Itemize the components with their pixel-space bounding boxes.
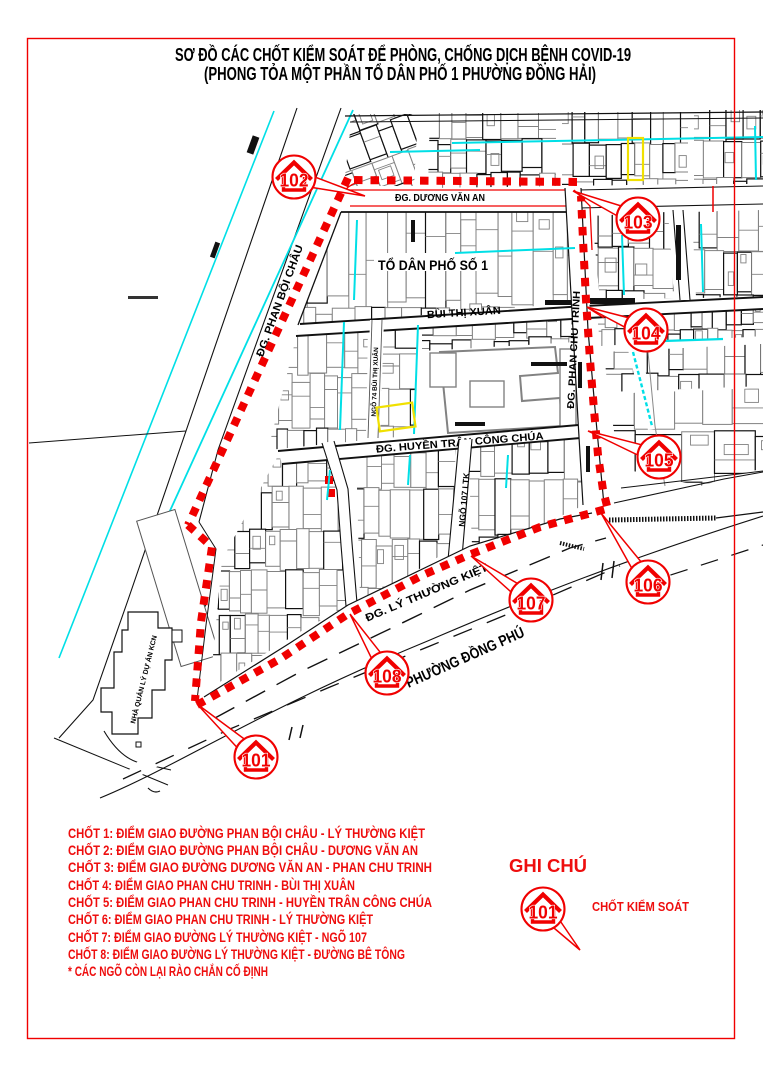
- svg-text:107: 107: [517, 593, 546, 614]
- svg-text:CHỐT 7: ĐIỂM GIAO ĐƯỜNG LÝ TH: CHỐT 7: ĐIỂM GIAO ĐƯỜNG LÝ THƯỜNG KIỆT -…: [68, 930, 367, 945]
- svg-text:CHỐT 4: ĐIỂM GIAO PHAN CHU TRI: CHỐT 4: ĐIỂM GIAO PHAN CHU TRINH - BÙI T…: [68, 878, 355, 893]
- svg-text:CHỐT 3: ĐIỂM GIAO ĐƯỜNG DƯƠNG: CHỐT 3: ĐIỂM GIAO ĐƯỜNG DƯƠNG VĂN AN - P…: [68, 860, 432, 875]
- svg-text:GHI CHÚ: GHI CHÚ: [509, 855, 587, 876]
- svg-text:105: 105: [645, 450, 674, 471]
- svg-text:106: 106: [634, 575, 663, 596]
- svg-text:103: 103: [624, 212, 653, 233]
- svg-text:CHỐT 6: ĐIỂM GIAO PHAN CHU TR: CHỐT 6: ĐIỂM GIAO PHAN CHU TRINH - LÝ TH…: [68, 912, 374, 927]
- svg-text:CHỐT 2: ĐIỂM GIAO ĐƯỜNG PHAN: CHỐT 2: ĐIỂM GIAO ĐƯỜNG PHAN BỘI CHÂU - …: [68, 843, 418, 858]
- svg-text:TỔ DÂN PHỐ SỐ 1: TỔ DÂN PHỐ SỐ 1: [378, 258, 488, 273]
- svg-text:CHỐT 1: ĐIỂM GIAO ĐƯỜNG PHAN B: CHỐT 1: ĐIỂM GIAO ĐƯỜNG PHAN BỘI CHÂU - …: [68, 826, 426, 841]
- svg-text:101: 101: [529, 902, 558, 923]
- svg-text:102: 102: [280, 170, 309, 191]
- svg-text:SƠ ĐỒ CÁC CHỐT KIỂM SOÁT ĐỂ: SƠ ĐỒ CÁC CHỐT KIỂM SOÁT ĐỂ PHÒNG, CHỐNG…: [175, 44, 631, 65]
- svg-text:104: 104: [632, 323, 662, 344]
- svg-text:(PHONG TỎA MỘT PHẦN TỔ DÂN PHỐ: (PHONG TỎA MỘT PHẦN TỔ DÂN PHỐ 1 PHƯỜNG …: [204, 63, 596, 84]
- svg-text:CHỐT 8: ĐIỂM GIAO ĐƯỜNG LÝ TH: CHỐT 8: ĐIỂM GIAO ĐƯỜNG LÝ THƯỜNG KIỆT -…: [68, 947, 405, 962]
- svg-text:108: 108: [373, 666, 402, 687]
- svg-text:CHỐT 5: ĐIỂM GIAO PHAN CHU TR: CHỐT 5: ĐIỂM GIAO PHAN CHU TRINH - HUYỀN…: [68, 895, 432, 910]
- svg-text:* CÁC NGÕ CÒN LẠI RÀO CHẮN CỐ: * CÁC NGÕ CÒN LẠI RÀO CHẮN CỐ ĐỊNH: [68, 964, 268, 979]
- svg-text:ĐG. DƯƠNG VĂN AN: ĐG. DƯƠNG VĂN AN: [395, 191, 485, 204]
- svg-text:CHỐT KIỂM SOÁT: CHỐT KIỂM SOÁT: [592, 899, 689, 914]
- svg-text:101: 101: [242, 750, 271, 771]
